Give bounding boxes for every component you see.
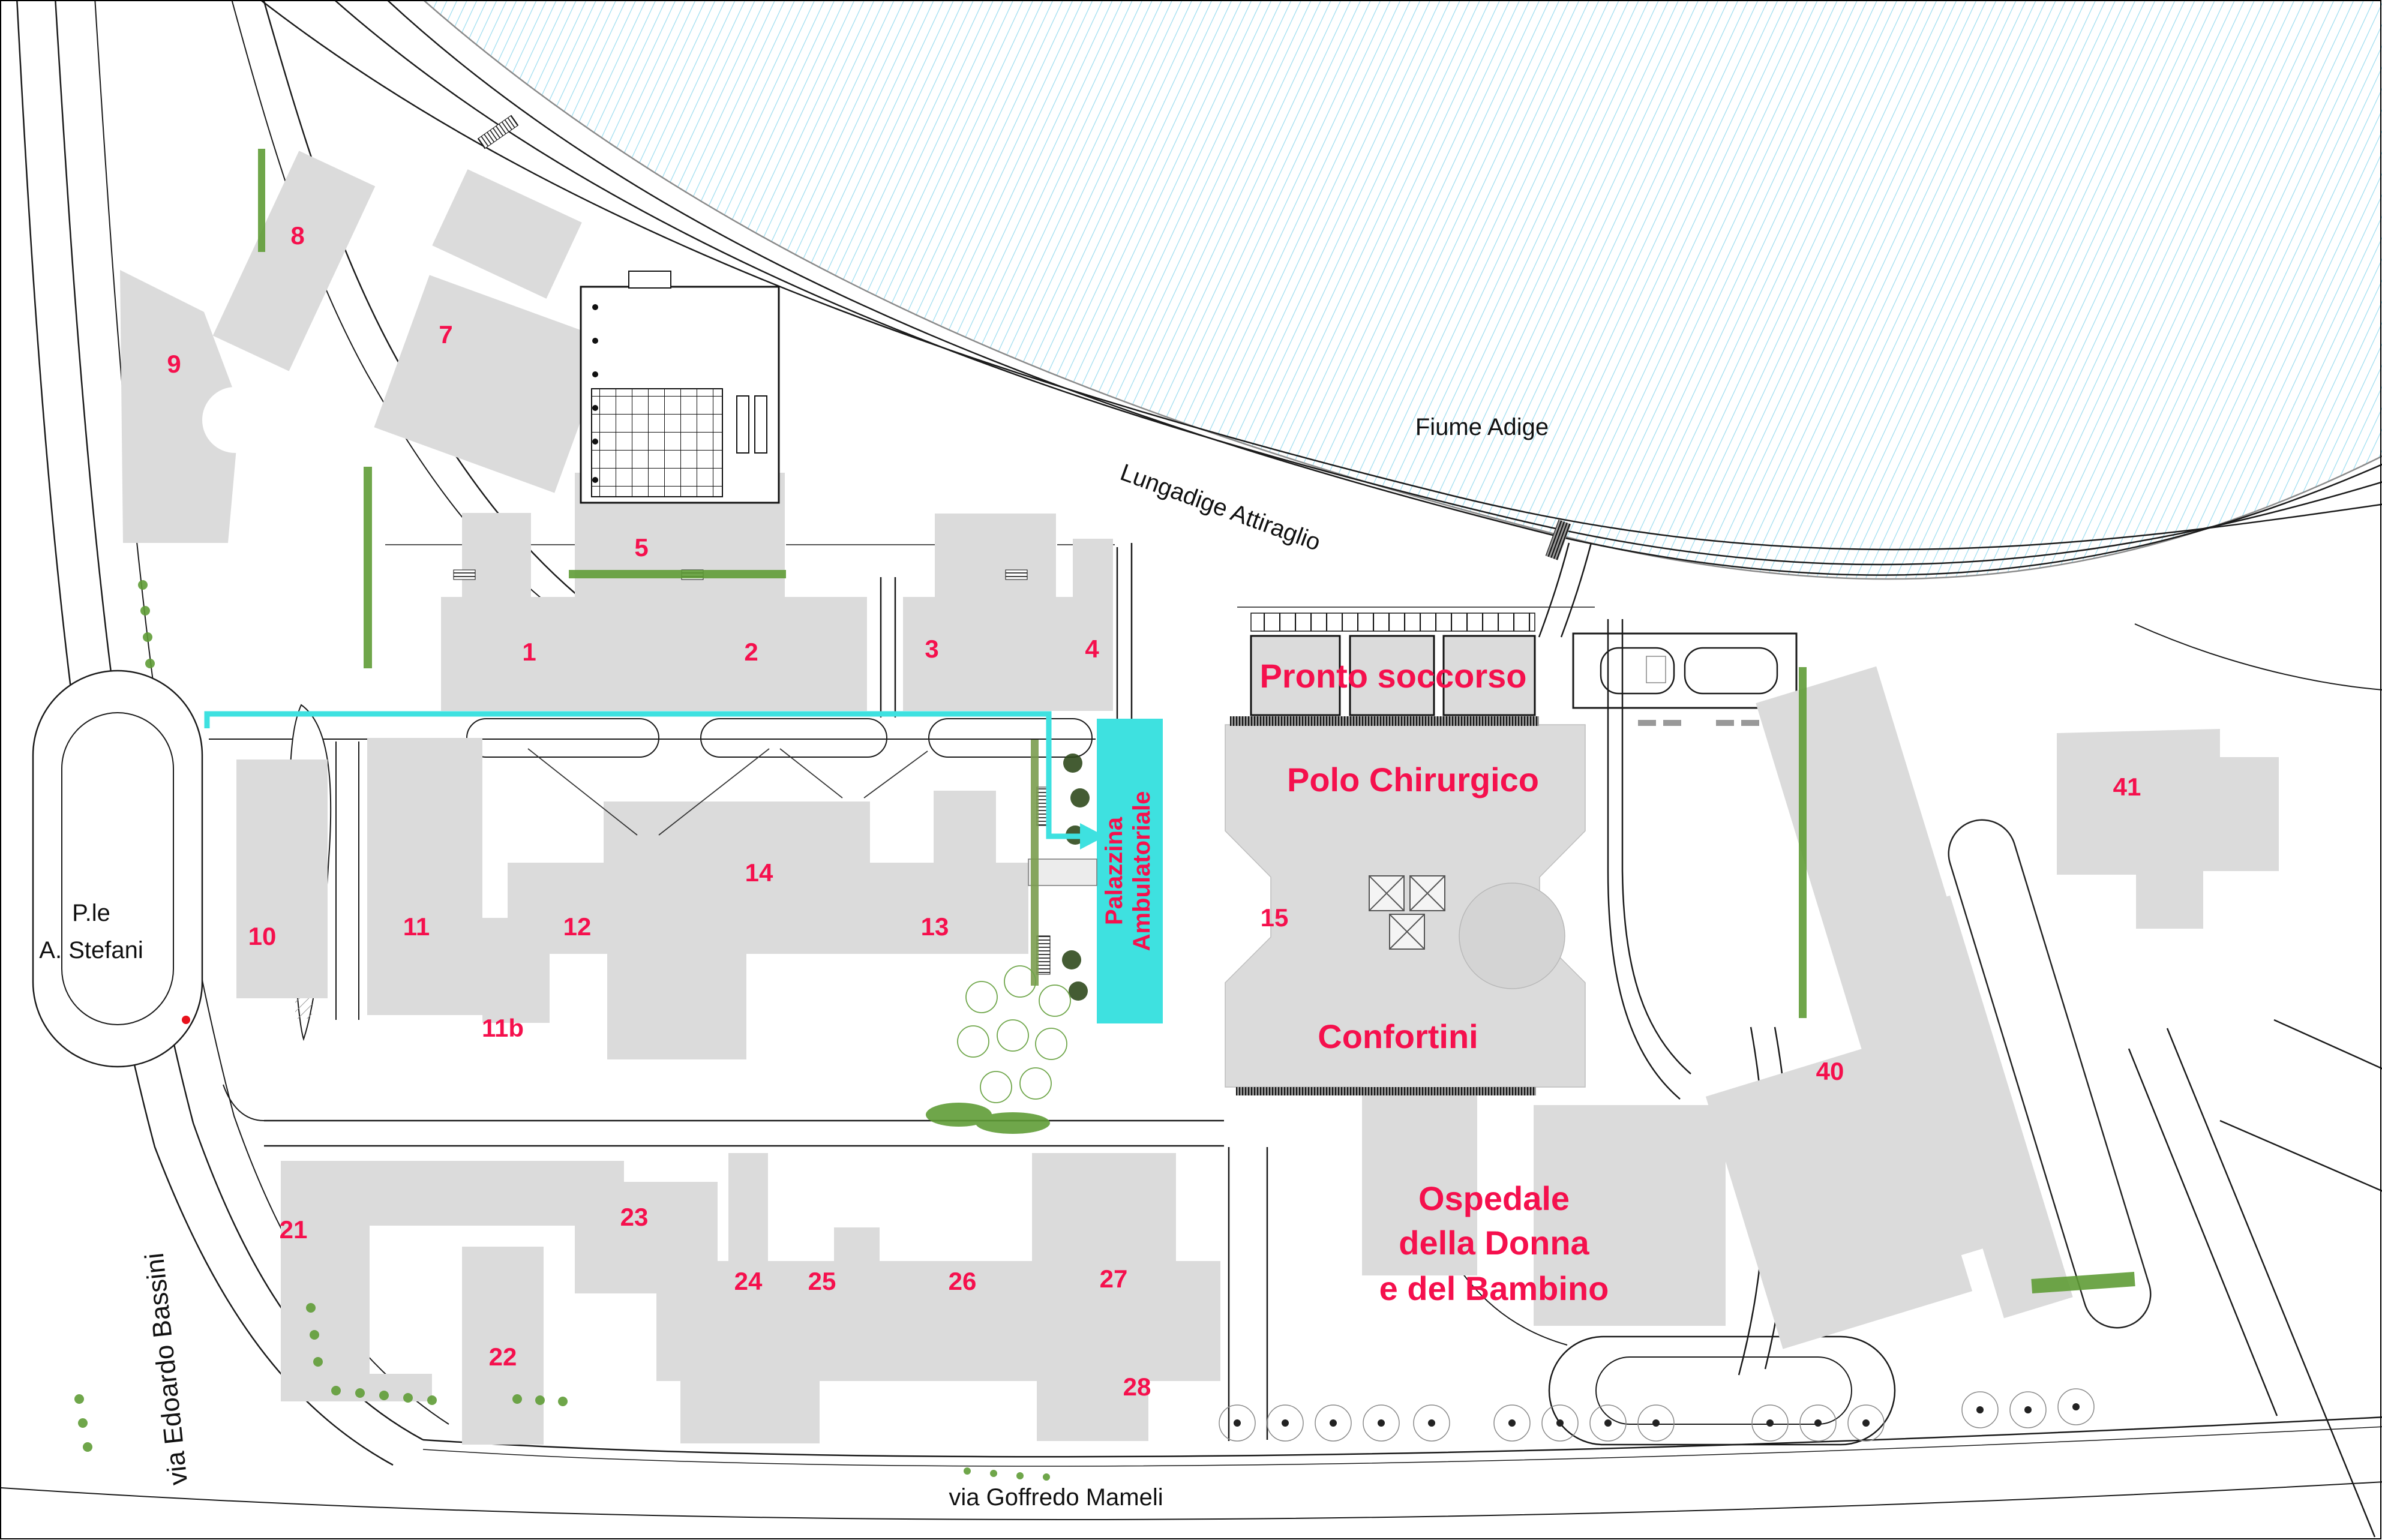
polo-chirurgico-label: Polo Chirurgico xyxy=(1287,763,1539,797)
building-label-28: 28 xyxy=(1123,1374,1151,1400)
building-label-27: 27 xyxy=(1100,1266,1128,1292)
building-label-24: 24 xyxy=(734,1269,763,1294)
building-label-8: 8 xyxy=(290,223,304,248)
street-trees xyxy=(1219,1389,2094,1441)
building-21-shape xyxy=(281,1161,624,1226)
building-label-23: 23 xyxy=(620,1205,649,1230)
ple-stefani-label-line2: A. Stefani xyxy=(39,938,143,962)
building-label-40: 40 xyxy=(1816,1059,1844,1084)
technical-grid-building xyxy=(581,271,779,503)
building-label-15: 15 xyxy=(1261,905,1289,930)
river-label: Fiume Adige xyxy=(1415,415,1549,439)
ospedale-donna-label-line1: Ospedale xyxy=(1418,1182,1570,1215)
hospital-campus-map: 1 2 3 4 5 7 8 9 10 11 11b 12 13 14 15 21… xyxy=(0,0,2382,1540)
building-10-shape xyxy=(236,760,328,998)
building-label-11: 11 xyxy=(403,914,430,939)
building-1-2-shape xyxy=(441,597,867,711)
building-label-12: 12 xyxy=(563,914,592,939)
building-label-26: 26 xyxy=(949,1269,977,1294)
building-label-7: 7 xyxy=(439,322,452,347)
building-label-5: 5 xyxy=(634,535,648,560)
building-8-shape xyxy=(213,151,376,371)
confortini-label: Confortini xyxy=(1318,1020,1478,1053)
building-label-3: 3 xyxy=(925,637,938,662)
building-label-9: 9 xyxy=(167,352,181,377)
building-label-22: 22 xyxy=(489,1344,517,1370)
building-label-13: 13 xyxy=(921,914,949,939)
map-drawing xyxy=(0,0,2382,1540)
building-label-41: 41 xyxy=(2113,774,2141,800)
pronto-soccorso-label: Pronto soccorso xyxy=(1260,659,1527,693)
via-mameli-label: via Goffredo Mameli xyxy=(949,1485,1163,1509)
building-14-shape xyxy=(604,801,870,864)
building-label-11b: 11b xyxy=(482,1016,524,1041)
building-label-4: 4 xyxy=(1085,637,1099,662)
ple-stefani-label-line1: P.le xyxy=(72,901,110,925)
ospedale-donna-label-line2: della Donna xyxy=(1399,1226,1589,1260)
building-41-shape xyxy=(2057,729,2279,929)
building-label-25: 25 xyxy=(808,1269,836,1294)
ospedale-donna-label-line3: e del Bambino xyxy=(1379,1272,1609,1305)
building-label-14: 14 xyxy=(745,860,773,885)
building-7-shape xyxy=(374,275,610,493)
building-label-10: 10 xyxy=(248,924,277,949)
red-marker xyxy=(182,1016,190,1024)
building-label-1: 1 xyxy=(522,640,536,665)
building-11-shape xyxy=(367,738,482,1015)
building-label-2: 2 xyxy=(744,640,758,665)
building-label-21: 21 xyxy=(280,1217,308,1242)
palazzina-ambulatoriale-label: Palazzina Ambulatoriale xyxy=(1100,791,1156,951)
